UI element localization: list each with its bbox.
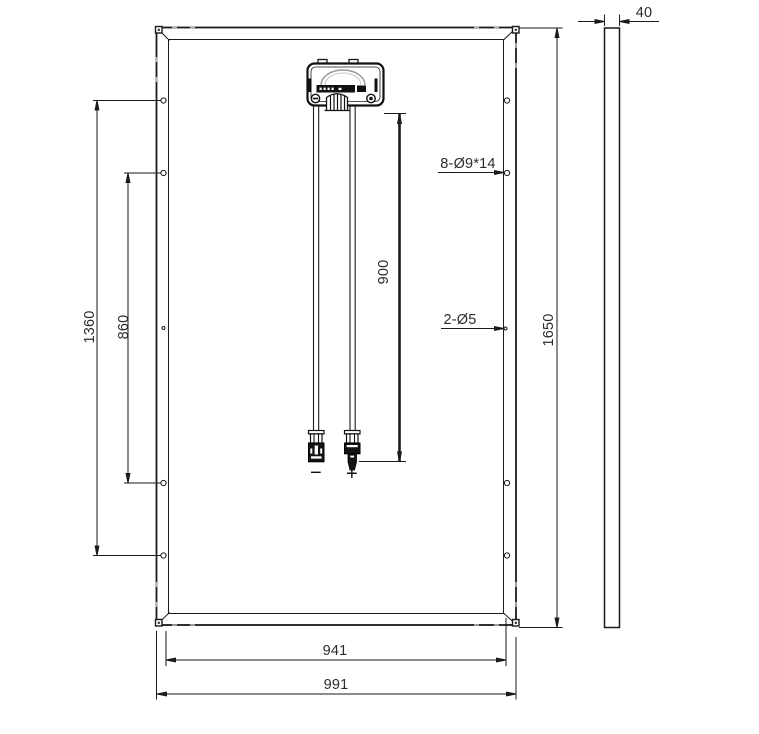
- junction-box: [308, 60, 384, 111]
- grounding-holes-label: 2-Ø5: [430, 311, 490, 329]
- dimension-label-1650: 1650: [540, 308, 558, 352]
- negative-terminal-label: −: [301, 464, 331, 482]
- dimension-label-941: 941: [305, 642, 365, 660]
- dimension-label-40: 40: [614, 4, 674, 22]
- solar-panel-rear-drawing: 1360 860 900 1650 941 991 40 8-Ø9*14 2-Ø…: [0, 0, 759, 734]
- dimension-label-991: 991: [306, 676, 366, 694]
- junction-box-positive-terminal: [367, 94, 375, 102]
- cable-negative: [314, 106, 319, 431]
- drawing-linework: [0, 0, 759, 734]
- dimension-label-900: 900: [375, 250, 393, 294]
- dimension-label-1360: 1360: [81, 305, 99, 349]
- junction-box-negative-terminal: [311, 94, 319, 102]
- dimension-label-860: 860: [115, 305, 133, 349]
- positive-terminal-label: +: [337, 465, 367, 483]
- panel-side-view: [605, 28, 620, 628]
- connector-negative: [309, 431, 325, 462]
- cable-positive: [350, 106, 355, 431]
- junction-box-cable-gland: [325, 94, 350, 111]
- junction-box-terminal-bar: [317, 85, 356, 93]
- mounting-holes-label: 8-Ø9*14: [428, 155, 508, 173]
